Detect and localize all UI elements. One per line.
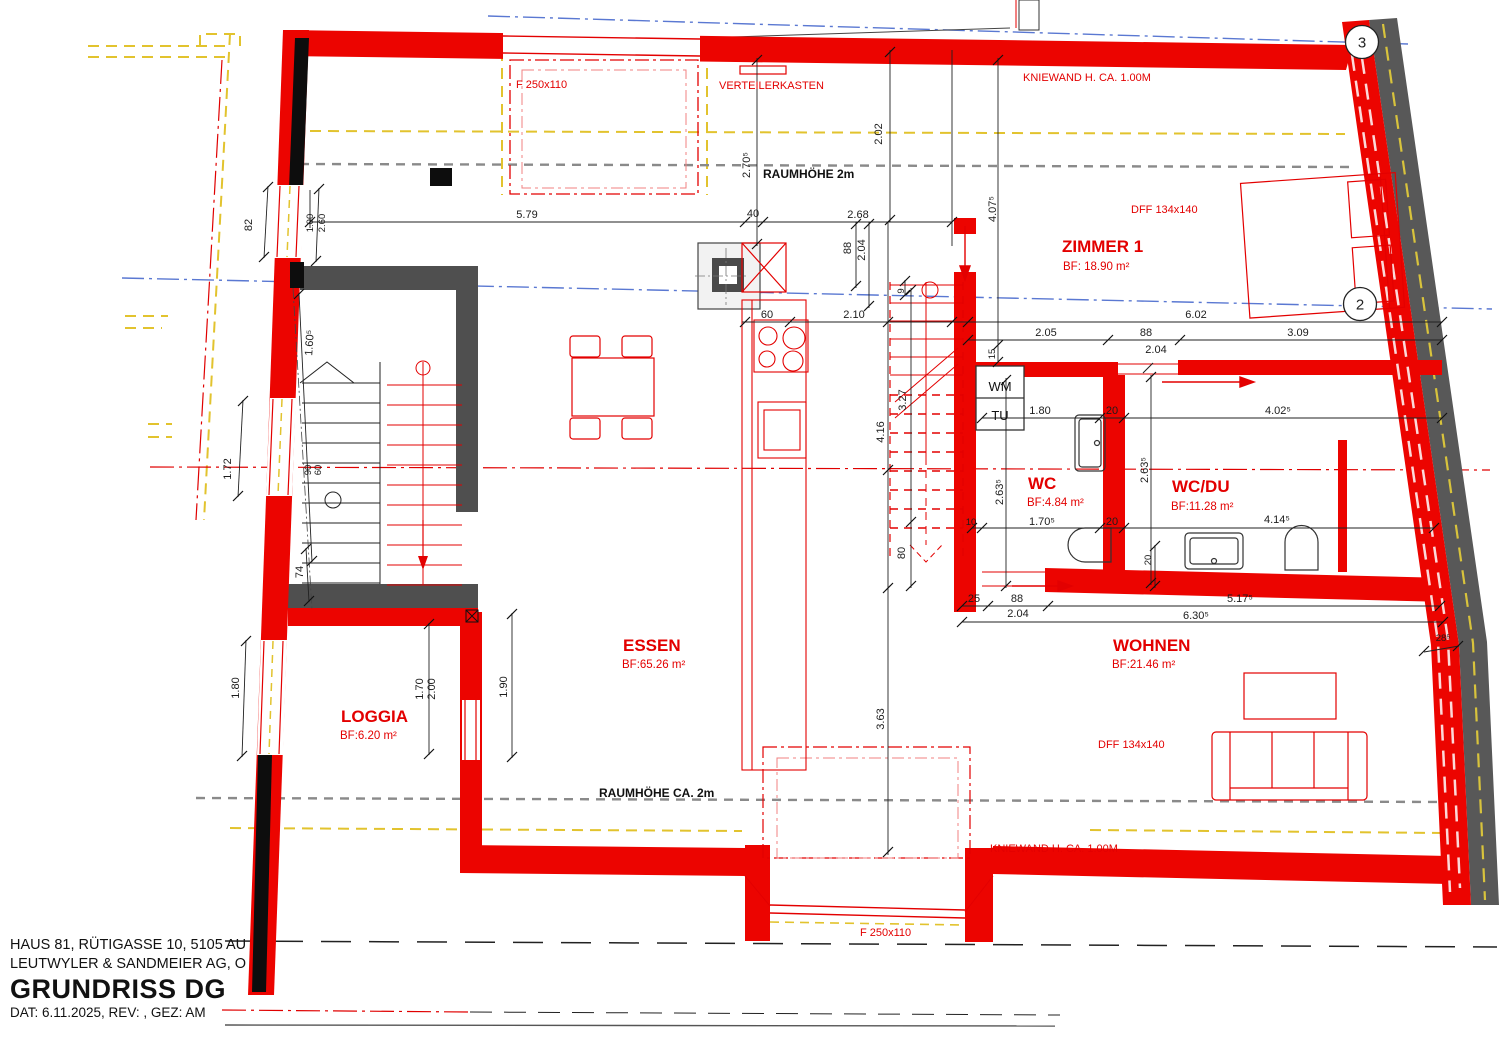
dim-text: 20 (1106, 405, 1118, 417)
window-bottom-label: F 250x110 (860, 927, 911, 939)
dim-text: 60 (313, 465, 324, 476)
axis-marker-3: 3 (1346, 26, 1379, 59)
dim-text: 74 (294, 566, 306, 578)
annotation-labels: F 250x110 VERTEILERKASTEN KNIEWAND H. CA… (516, 72, 1198, 939)
floorplan-canvas: 3 2 ZIMMER 1 BF: 18.90 m² WC BF:4.84 m² … (0, 0, 1500, 1039)
dim-text: 1.60⁵ (303, 329, 317, 356)
drawing-title: GRUNDRISS DG (10, 974, 246, 1004)
dim-text: 1.80 (1029, 405, 1050, 417)
window-top-label: F 250x110 (516, 79, 567, 91)
top-dormer-window (503, 31, 700, 194)
dim-text: 2.05 (1035, 327, 1056, 339)
dim-text: 4.14⁵ (1264, 514, 1290, 526)
room-wohnen-name: WOHNEN (1113, 636, 1190, 655)
axis-marker-2-label: 2 (1356, 297, 1364, 314)
room-wohnen-area: BF:21.46 m² (1112, 659, 1175, 671)
dim-text: 40 (747, 208, 759, 220)
new-red-walls (248, 20, 1471, 995)
wc-washbasin (1075, 415, 1105, 471)
wcdu-washbasin (1185, 533, 1243, 569)
dim-text: 20 (1106, 516, 1118, 528)
sofa (1212, 673, 1367, 800)
dim-text: 2.02 (873, 123, 885, 144)
room-essen-name: ESSEN (623, 636, 681, 655)
dim-text: 2.60 (317, 214, 328, 233)
dim-text: 2.00 (426, 678, 438, 699)
dim-text: 60 (761, 309, 773, 321)
dim-text: 88 (1011, 593, 1023, 605)
axis-marker-2: 2 (1344, 288, 1377, 321)
dim-text: 1.80 (230, 677, 242, 698)
raumhoehe-top-label: RAUMHÖHE 2m (763, 166, 854, 181)
dim-text: 3.09 (1287, 327, 1308, 339)
dim-text: 2.63⁵ (994, 479, 1006, 505)
wcdu-toilet (1285, 526, 1318, 571)
room-zimmer1-name: ZIMMER 1 (1062, 237, 1143, 256)
room-essen-area: BF:65.26 m² (622, 659, 685, 671)
dim-text: 1.90 (498, 676, 510, 697)
axis-marker-3-label: 3 (1358, 35, 1366, 52)
dim-text: 6.30⁵ (1183, 610, 1209, 622)
dim-text: 2.04 (1145, 344, 1166, 356)
dim-text: 5.17⁵ (1227, 593, 1253, 605)
dim-text: 15 (987, 349, 998, 360)
dim-text: 25 (968, 593, 980, 605)
dim-text: 2.10 (843, 309, 864, 321)
dim-text: 20 (1143, 555, 1154, 566)
dim-text: 3.63 (875, 708, 887, 729)
dff-top-label: DFF 134x140 (1131, 204, 1198, 216)
project-address: HAUS 81, RÜTIGASSE 10, 5105 AU (10, 936, 246, 955)
verteilerkasten-label: VERTEILERKASTEN (719, 80, 824, 92)
room-zimmer1-area: BF: 18.90 m² (1063, 261, 1130, 273)
dim-text: 1.70 (414, 678, 426, 699)
dim-text: 4.16 (875, 421, 887, 442)
raumhoehe-bottom-label: RAUMHÖHE CA. 2m (599, 785, 714, 800)
dim-text: 4.07⁵ (987, 196, 999, 222)
dim-text: 2.70⁵ (741, 152, 753, 178)
dim-text: 1.00 (305, 214, 316, 233)
new-staircase (890, 282, 963, 562)
dim-text: 88 (842, 242, 854, 254)
kniewand-top-label: KNIEWAND H. CA. 1.00M (1023, 72, 1151, 84)
title-block: HAUS 81, RÜTIGASSE 10, 5105 AU LEUTWYLER… (10, 936, 246, 1021)
dim-text: 88 (1140, 327, 1152, 339)
dim-text: 3.27 (897, 389, 909, 410)
dim-text: 28⁵ (1436, 633, 1451, 644)
dim-text: 1.70⁵ (1029, 516, 1055, 528)
kniewand-bottom-label: KNIEWAND H. CA. 1.00M (990, 843, 1118, 855)
dim-text: 2.04 (856, 239, 868, 260)
room-wc-name: WC (1028, 474, 1056, 493)
dff-bottom-label: DFF 134x140 (1098, 739, 1165, 751)
dim-text: 6.02 (1185, 309, 1206, 321)
wm-label: WM (988, 379, 1011, 394)
dimension-texts: 5.79 40 2.68 2.02 2.70⁵ 88 2.04 60 2.10 … (222, 123, 1450, 729)
dim-text: 1.72 (222, 458, 234, 479)
dim-text: 2.04 (1007, 608, 1028, 620)
date-revision-line: DAT: 6.11.2025, REV: , GEZ: AM (10, 1004, 246, 1021)
dim-text: 80 (896, 547, 908, 559)
top-edge-box (1016, 0, 1039, 30)
chimney (695, 243, 786, 309)
tu-label: TU (991, 408, 1008, 423)
room-wc-area: BF:4.84 m² (1027, 497, 1084, 509)
room-wcdu-name: WC/DU (1172, 477, 1230, 496)
dim-text: 10 (966, 517, 977, 528)
floorplan-drawing: 3 2 ZIMMER 1 BF: 18.90 m² WC BF:4.84 m² … (0, 0, 1500, 1039)
company-name: LEUTWYLER & SANDMEIER AG, O (10, 955, 246, 974)
room-loggia-name: LOGGIA (341, 707, 408, 726)
dining-set (570, 336, 654, 439)
kitchen-counter (742, 300, 808, 770)
core-staircase-new (387, 361, 462, 585)
dim-text: 4.02⁵ (1265, 405, 1291, 417)
dim-text: 9 (896, 288, 907, 293)
dim-text: 2.63⁵ (1139, 457, 1151, 483)
dim-text: 2.68 (847, 209, 868, 221)
verteilerkasten-box (740, 66, 786, 74)
dim-text: 5.79 (516, 209, 537, 221)
dim-text: 82 (243, 219, 255, 231)
room-loggia-area: BF:6.20 m² (340, 730, 397, 742)
room-wcdu-area: BF:11.28 m² (1171, 501, 1234, 513)
bottom-dormer (745, 747, 993, 925)
